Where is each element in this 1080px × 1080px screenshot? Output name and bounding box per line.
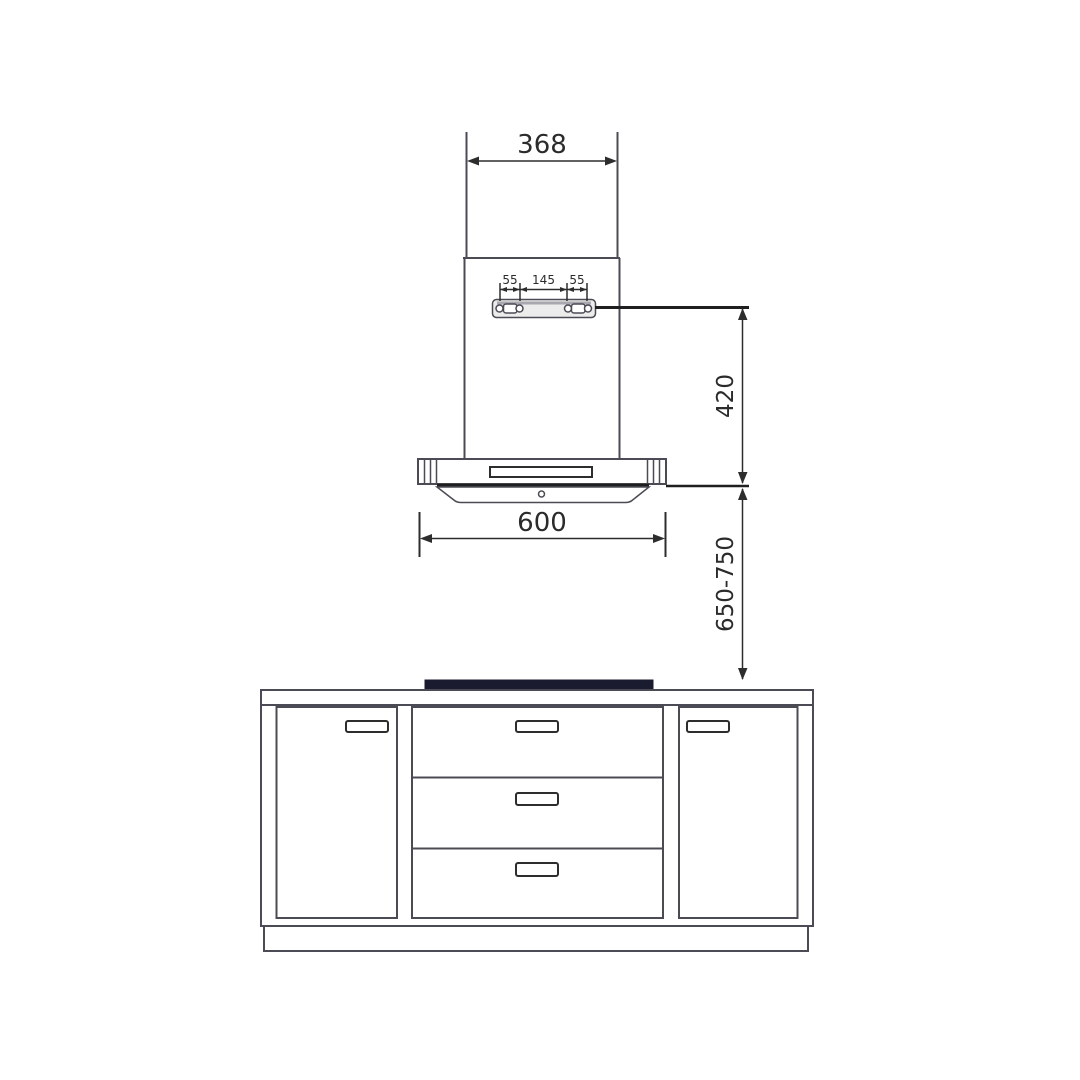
dim-install-height: 650-750: [713, 488, 748, 680]
bracket-hole-icon: [496, 305, 503, 312]
dim-label-pitch-center: 145: [532, 273, 555, 287]
hood-canopy: [418, 459, 666, 503]
bracket-hole-icon: [565, 305, 572, 312]
drawer-stack: [412, 707, 663, 918]
installation-diagram: 368 55 145 55 420 650-750: [0, 0, 1080, 1080]
left-door-handle: [346, 721, 388, 732]
arrowhead-icon: [513, 287, 520, 292]
cabinet-body: [261, 705, 813, 926]
mounting-bracket: [493, 300, 596, 318]
dim-hood-width: 600: [420, 508, 666, 557]
bracket-slot-icon: [504, 304, 518, 313]
arrowhead-icon: [567, 287, 574, 292]
drawer-3-handle: [516, 863, 558, 876]
arrowhead-right-icon: [605, 157, 617, 166]
base-cabinet: [261, 680, 813, 952]
arrowhead-up-icon: [738, 488, 748, 500]
dim-label-pitch-left: 55: [502, 273, 517, 287]
canopy-body: [418, 459, 666, 484]
dim-hood-height: 420: [713, 308, 748, 484]
arrowhead-down-icon: [738, 668, 748, 680]
arrowhead-icon: [520, 287, 527, 292]
arrowhead-icon: [580, 287, 587, 292]
lamp-icon: [539, 491, 545, 497]
arrowhead-down-icon: [738, 472, 748, 484]
cooktop: [425, 680, 654, 690]
dim-duct-width: 368: [467, 130, 617, 166]
drawer-1-handle: [516, 721, 558, 732]
chimney-duct: [463, 132, 620, 459]
dim-bracket-pitch: 55 145 55: [500, 273, 587, 301]
arrowhead-icon: [500, 287, 507, 292]
arrowhead-up-icon: [738, 308, 748, 320]
countertop: [261, 690, 813, 705]
dim-label-hood-width: 600: [517, 508, 567, 538]
bracket-hole-icon: [516, 305, 523, 312]
bracket-slot-icon: [572, 304, 586, 313]
right-door-handle: [687, 721, 729, 732]
arrowhead-left-icon: [467, 157, 479, 166]
arrowhead-left-icon: [420, 534, 432, 543]
dim-label-duct-width: 368: [517, 130, 567, 160]
range-hood: [418, 132, 666, 503]
bracket-hole-icon: [585, 305, 592, 312]
dim-label-install-height: 650-750: [713, 536, 739, 632]
dim-label-hood-height: 420: [713, 374, 739, 418]
diagram-svg: 368 55 145 55 420 650-750: [0, 0, 1080, 1080]
arrowhead-right-icon: [653, 534, 665, 543]
vent-slot: [490, 467, 592, 477]
arrowhead-icon: [560, 287, 567, 292]
right-door: [679, 707, 798, 918]
drawer-2-handle: [516, 793, 558, 805]
left-door: [277, 707, 398, 918]
plinth: [264, 926, 808, 951]
dim-label-pitch-right: 55: [569, 273, 584, 287]
glass-panel: [437, 487, 649, 503]
